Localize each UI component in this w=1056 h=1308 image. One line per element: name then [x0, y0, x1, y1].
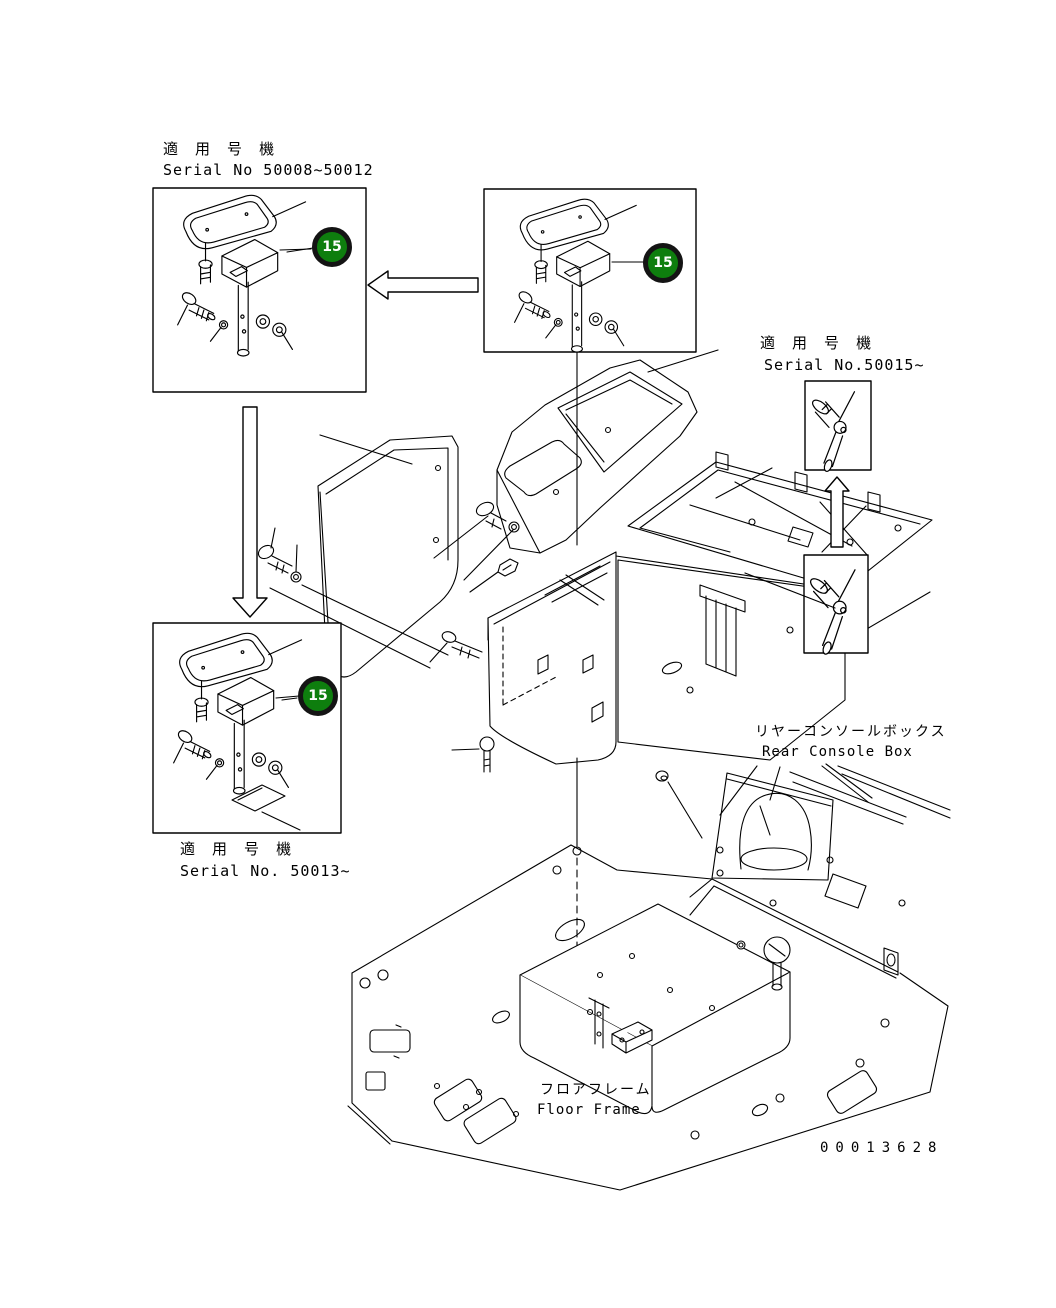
parts-diagram-page: 適 用 号 機 Serial No 50008~50012 適 用 号 機 Se…	[0, 0, 1056, 1308]
serial-label-bottom-left-jp: 適 用 号 機	[180, 840, 295, 859]
rear-console-box-label-en: Rear Console Box	[762, 744, 913, 762]
rear-console-wall-drawing	[712, 764, 950, 975]
inset-box-serial-50013	[153, 623, 341, 833]
floor-frame-label-jp: フロアフレーム	[540, 1082, 652, 1100]
part-badge-15-bottom-left[interactable]: 15	[298, 676, 338, 716]
drawing-number: 00013628	[820, 1140, 943, 1158]
serial-label-right-jp: 適 用 号 機	[760, 334, 875, 353]
inset-box-serial-50008	[153, 188, 366, 392]
diagram-canvas	[0, 0, 1056, 1308]
arrow-down-connector	[233, 407, 267, 617]
floor-frame-label-en: Floor Frame	[537, 1102, 641, 1120]
inset-box-lever-upper-right	[805, 381, 871, 472]
rear-console-box-label-jp: リヤーコンソールボックス	[755, 724, 947, 742]
part-badge-15-top-left[interactable]: 15	[312, 227, 352, 267]
serial-label-top-left-jp: 適 用 号 機	[163, 140, 278, 159]
serial-label-right-en: Serial No.50015~	[764, 356, 925, 375]
serial-label-bottom-left-en: Serial No. 50013~	[180, 862, 351, 881]
part-badge-15-top-middle[interactable]: 15	[643, 243, 683, 283]
serial-label-top-left-en: Serial No 50008~50012	[163, 161, 374, 180]
arrow-left-connector	[368, 271, 478, 299]
